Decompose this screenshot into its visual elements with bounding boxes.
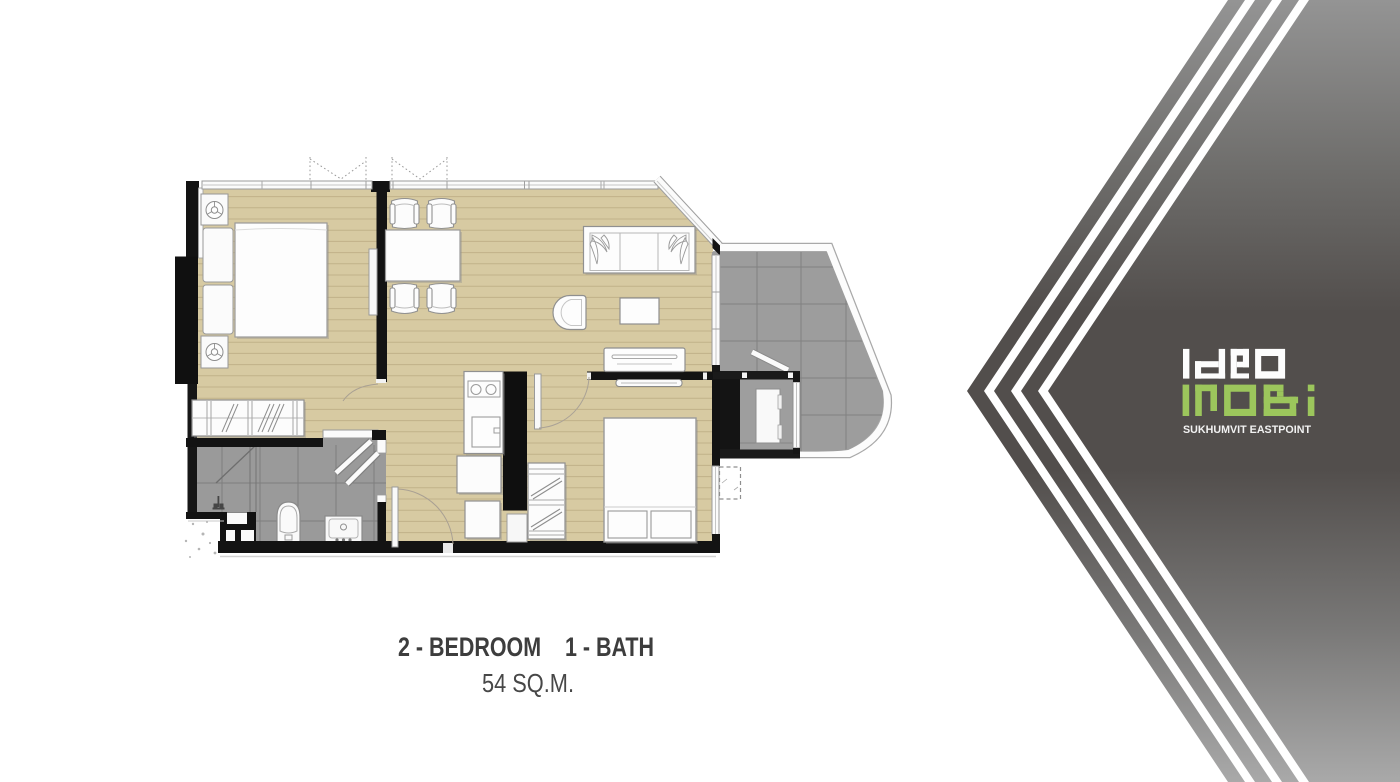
svg-text:54 SQ.M.: 54 SQ.M.: [482, 668, 574, 698]
svg-text:SUKHUMVIT EASTPOINT: SUKHUMVIT EASTPOINT: [1183, 424, 1311, 436]
svg-text:2 - BEDROOM 1 - BATH: 2 - BEDROOM 1 - BATH: [398, 632, 654, 662]
